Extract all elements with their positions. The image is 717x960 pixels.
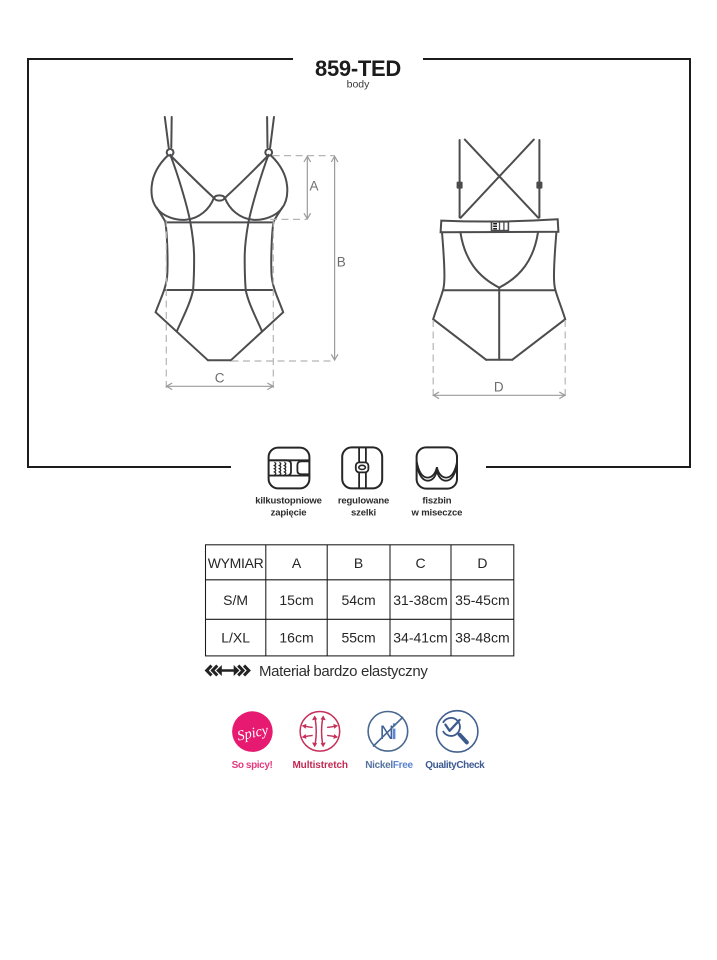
svg-text:So spicy!: So spicy! (232, 760, 273, 771)
svg-text:38-48cm: 38-48cm (455, 629, 509, 645)
svg-text:31-38cm: 31-38cm (393, 592, 447, 608)
svg-text:A: A (292, 555, 302, 571)
svg-text:C: C (415, 555, 425, 571)
svg-text:B: B (337, 255, 346, 270)
svg-text:54cm: 54cm (341, 592, 375, 608)
svg-text:WYMIAR: WYMIAR (208, 555, 264, 571)
svg-text:szelki: szelki (351, 508, 376, 519)
svg-text:C: C (215, 371, 225, 386)
svg-text:16cm: 16cm (279, 629, 313, 645)
svg-text:QualityCheck: QualityCheck (425, 760, 485, 771)
svg-text:fiszbin: fiszbin (422, 496, 451, 507)
svg-text:34-41cm: 34-41cm (393, 629, 447, 645)
svg-text:zapięcie: zapięcie (271, 508, 307, 519)
svg-text:859-TED: 859-TED (315, 56, 401, 81)
svg-text:D: D (477, 555, 487, 571)
svg-text:55cm: 55cm (341, 629, 375, 645)
svg-text:L/XL: L/XL (221, 629, 250, 645)
svg-text:Multistretch: Multistretch (292, 760, 347, 771)
svg-text:Materiał bardzo elastyczny: Materiał bardzo elastyczny (259, 663, 428, 680)
svg-text:15cm: 15cm (279, 592, 313, 608)
svg-text:body: body (347, 79, 371, 91)
svg-text:A: A (310, 179, 319, 194)
svg-text:35-45cm: 35-45cm (455, 592, 509, 608)
svg-text:w miseczce: w miseczce (411, 508, 463, 519)
svg-text:B: B (354, 555, 363, 571)
svg-text:regulowane: regulowane (338, 496, 389, 507)
svg-text:NickelFree: NickelFree (365, 760, 413, 771)
svg-text:D: D (494, 379, 504, 394)
svg-text:S/M: S/M (223, 592, 248, 608)
svg-text:kilkustopniowe: kilkustopniowe (255, 496, 322, 507)
